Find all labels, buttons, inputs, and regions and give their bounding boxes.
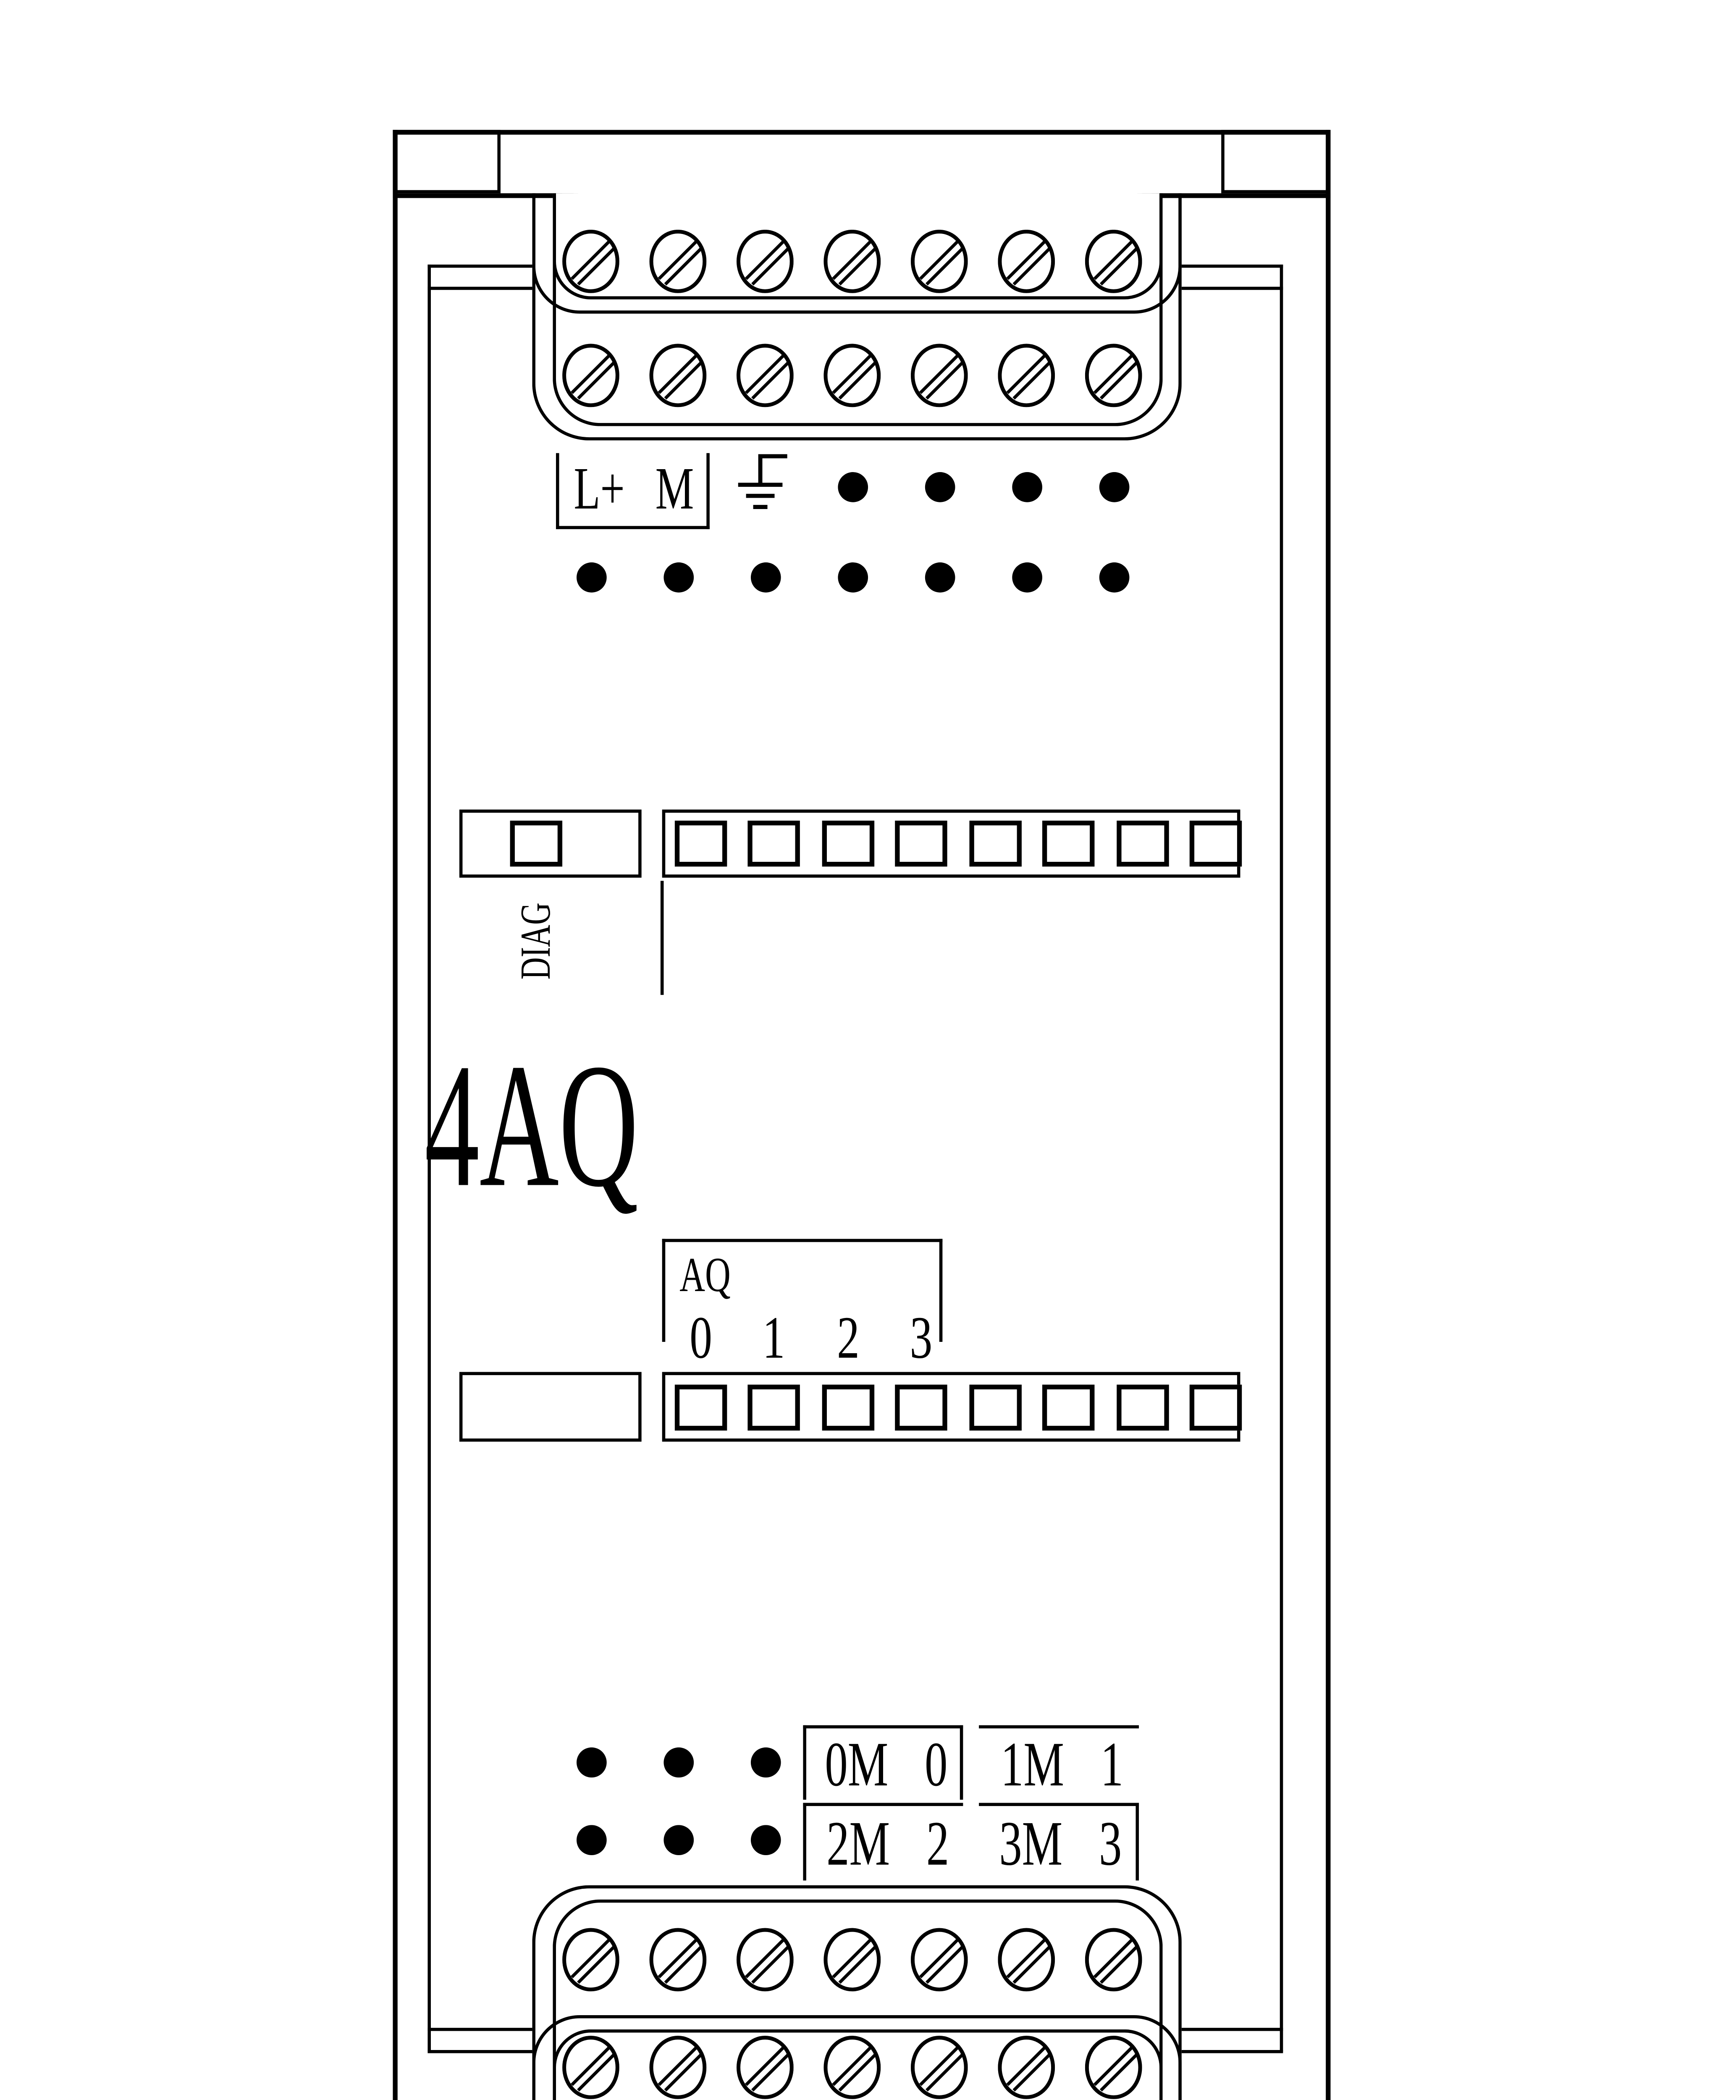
terminal-screw <box>823 230 881 293</box>
power-terminal-box: L+ M <box>556 453 710 528</box>
unused-terminal-dot <box>750 562 780 592</box>
terminal-cell-3m3: 3M 3 <box>978 1803 1138 1881</box>
unused-terminal-dot <box>576 1747 606 1777</box>
terminal-screw <box>998 344 1055 407</box>
terminal-screw <box>911 2036 968 2099</box>
terminal-screw <box>737 230 794 293</box>
status-led <box>1042 821 1094 866</box>
step-top-right-b <box>1182 287 1283 291</box>
status-led <box>969 1385 1021 1431</box>
unused-terminal-dot <box>663 562 693 592</box>
terminal-screw <box>562 344 619 407</box>
terminal-screw <box>1085 1928 1142 1992</box>
terminal-screw-row-2 <box>562 344 1142 407</box>
terminal-cell-0m0: 0M 0 <box>802 1725 962 1799</box>
aq-channel-number: 3 <box>902 1312 941 1365</box>
frame-top-edge <box>393 130 1330 134</box>
status-led <box>747 821 800 866</box>
frame-left-edge <box>393 130 397 2100</box>
terminal-screw <box>823 344 881 407</box>
terminal-screw <box>911 230 968 293</box>
terminal-screw <box>911 1928 968 1992</box>
module-top-line-left <box>393 193 553 197</box>
terminal-screw <box>823 2036 881 2099</box>
aq-channel-number: 1 <box>754 1312 793 1365</box>
terminal-label-m: M <box>656 454 695 524</box>
earth-ground-icon <box>729 450 792 513</box>
status-led <box>674 821 726 866</box>
terminal-screw <box>562 2036 619 2099</box>
step-top-right-a <box>1182 265 1283 268</box>
terminal-screw <box>562 230 619 293</box>
status-led <box>1190 821 1242 866</box>
unused-terminal-dot <box>576 1824 606 1854</box>
terminal-screw <box>650 230 707 293</box>
status-led <box>969 821 1021 866</box>
step-top-left-b <box>427 287 532 291</box>
terminal-screw-row-4 <box>562 2036 1142 2099</box>
unused-terminal-dot <box>1099 471 1129 501</box>
terminal-screw <box>998 2036 1055 2099</box>
terminal-screw <box>911 344 968 407</box>
unused-terminal-dot <box>750 1824 780 1854</box>
unused-terminal-dot <box>750 1747 780 1777</box>
step-top-left-a <box>427 265 532 268</box>
terminal-screw <box>650 2036 707 2099</box>
status-led <box>821 1385 873 1431</box>
module-type-label: 4AQ <box>425 1038 638 1215</box>
terminal-screw <box>737 344 794 407</box>
status-leds-top <box>674 821 1242 866</box>
terminal-screw-row-1 <box>562 230 1142 293</box>
unused-terminal-dot <box>1099 562 1129 592</box>
terminal-screw <box>998 1928 1055 1992</box>
status-led <box>1042 1385 1094 1431</box>
diag-label: DIAG <box>517 893 555 989</box>
terminal-screw <box>998 230 1055 293</box>
unused-terminal-dots-row-4 <box>576 1824 780 1854</box>
unused-terminal-dots-row-3 <box>576 1747 780 1777</box>
terminal-screw <box>650 344 707 407</box>
unused-terminal-dot <box>663 1747 693 1777</box>
frame-right-edge <box>1326 130 1330 2100</box>
diag-led <box>510 821 562 866</box>
unused-terminal-dots-row-1 <box>837 471 1129 501</box>
terminal-screw <box>737 1928 794 1992</box>
terminal-screw <box>737 2036 794 2099</box>
status-led <box>821 821 873 866</box>
unused-terminal-dot <box>1011 562 1041 592</box>
module-top-line-right <box>1161 193 1331 197</box>
terminal-screw <box>823 1928 881 1992</box>
step-bottom-left-a <box>427 2028 532 2032</box>
unused-terminal-dot <box>663 1824 693 1854</box>
unused-terminal-dot <box>924 562 955 592</box>
spare-led-box-bottom <box>459 1372 642 1442</box>
terminal-cell-1m1: 1M 1 <box>978 1725 1138 1799</box>
aq-channel-number: 2 <box>828 1312 867 1365</box>
diag-pointer-line <box>661 881 664 995</box>
status-led <box>1116 1385 1168 1431</box>
terminal-label-lplus: L+ <box>574 454 624 524</box>
aq-channel-numbers: 0123 <box>674 1312 947 1365</box>
unused-terminal-dots-row-2 <box>576 562 1128 592</box>
unused-terminal-dot <box>837 471 868 501</box>
wiring-diagram-4aq-module: L+ M DIAG 4AQ AQ 0123 0M 0 1M 1 2M 2 <box>0 0 1736 2100</box>
top-left-tab <box>393 130 500 193</box>
status-leds-bottom <box>674 1385 1242 1431</box>
aq-group-label: AQ <box>679 1250 731 1299</box>
status-led <box>747 1385 800 1431</box>
status-led <box>1116 821 1168 866</box>
step-bottom-left-b <box>427 2050 532 2054</box>
status-led <box>895 821 947 866</box>
unused-terminal-dot <box>837 562 868 592</box>
terminal-screw <box>1085 2036 1142 2099</box>
status-led <box>674 1385 726 1431</box>
terminal-screw-row-3 <box>562 1928 1142 1992</box>
step-bottom-right-b <box>1182 2050 1283 2054</box>
unused-terminal-dot <box>1011 471 1041 501</box>
status-led <box>1190 1385 1242 1431</box>
terminal-screw <box>1085 344 1142 407</box>
aq-channel-number: 0 <box>681 1312 720 1365</box>
status-led <box>895 1385 947 1431</box>
terminal-screw <box>1085 230 1142 293</box>
terminal-cell-2m2: 2M 2 <box>802 1803 962 1881</box>
top-right-tab <box>1221 130 1329 193</box>
inner-right-edge <box>1280 265 1284 2052</box>
terminal-screw <box>562 1928 619 1992</box>
unused-terminal-dot <box>924 471 955 501</box>
terminal-screw <box>650 1928 707 1992</box>
step-bottom-right-a <box>1182 2028 1283 2032</box>
unused-terminal-dot <box>576 562 606 592</box>
